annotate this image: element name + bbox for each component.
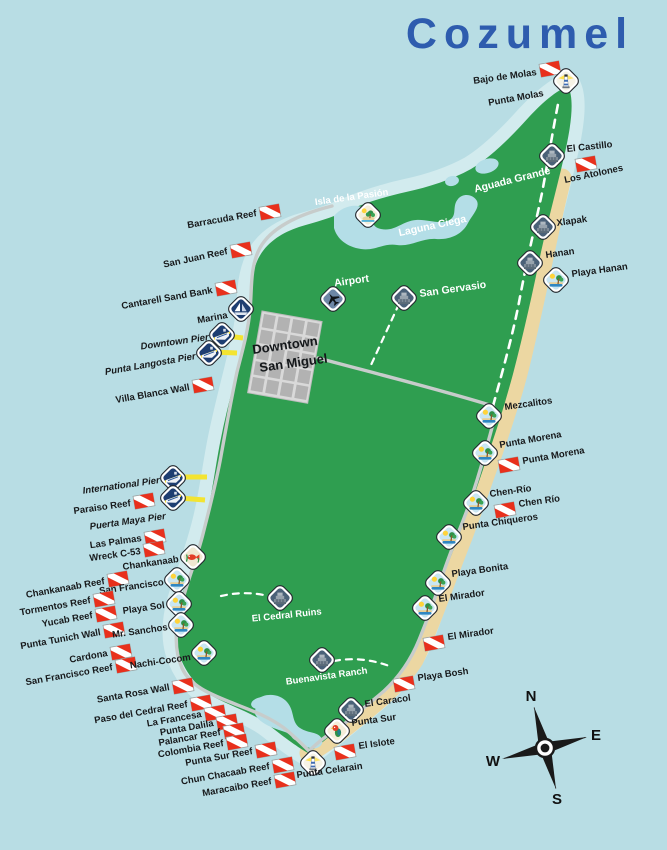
city-block [262, 314, 276, 329]
city-block [291, 319, 305, 334]
city-block [265, 379, 279, 394]
city-block [276, 316, 290, 331]
city-block [280, 382, 294, 397]
compass-s: S [552, 791, 562, 808]
page-title: Cozumel [406, 10, 634, 58]
map-canvas: Downtown San Miguel Bajo de MolasPunta M… [0, 0, 667, 850]
city-block [297, 369, 311, 384]
compass-e: E [591, 727, 601, 744]
compass-n: N [526, 688, 537, 705]
city-block [251, 377, 265, 392]
cozumel-map: Downtown San Miguel Bajo de MolasPunta M… [0, 0, 667, 850]
city-block [294, 385, 308, 400]
compass-w: W [486, 753, 501, 770]
